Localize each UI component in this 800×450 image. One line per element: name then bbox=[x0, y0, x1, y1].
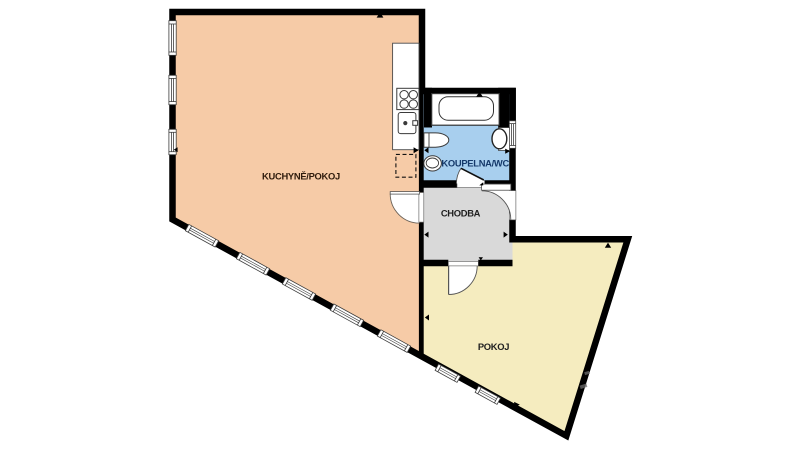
svg-text:CHODBA: CHODBA bbox=[441, 208, 481, 219]
svg-text:POKOJ: POKOJ bbox=[478, 341, 509, 352]
svg-text:KUCHYNĚ/POKOJ: KUCHYNĚ/POKOJ bbox=[262, 170, 340, 181]
svg-text:KOUPELNA/WC: KOUPELNA/WC bbox=[441, 158, 509, 169]
